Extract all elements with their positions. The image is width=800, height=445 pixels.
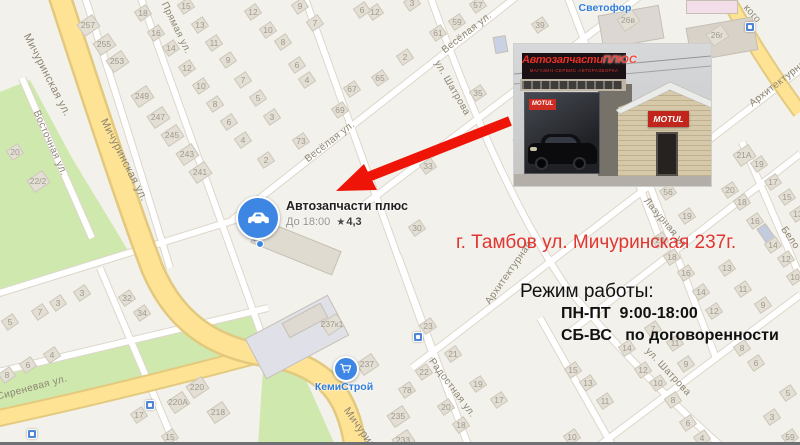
schedule-title: Режим работы:: [520, 281, 654, 303]
map-canvas[interactable]: 2572552532492472452432412022/21816141210…: [0, 0, 800, 445]
schedule-weekdays: ПН-ПТ 9:00-18:00: [561, 305, 698, 323]
red-arrow: [0, 0, 800, 445]
schedule-weekend: СБ-ВС по договоренности: [561, 327, 779, 345]
address-text: г. Тамбов ул. Мичуринская 237г.: [456, 232, 736, 254]
